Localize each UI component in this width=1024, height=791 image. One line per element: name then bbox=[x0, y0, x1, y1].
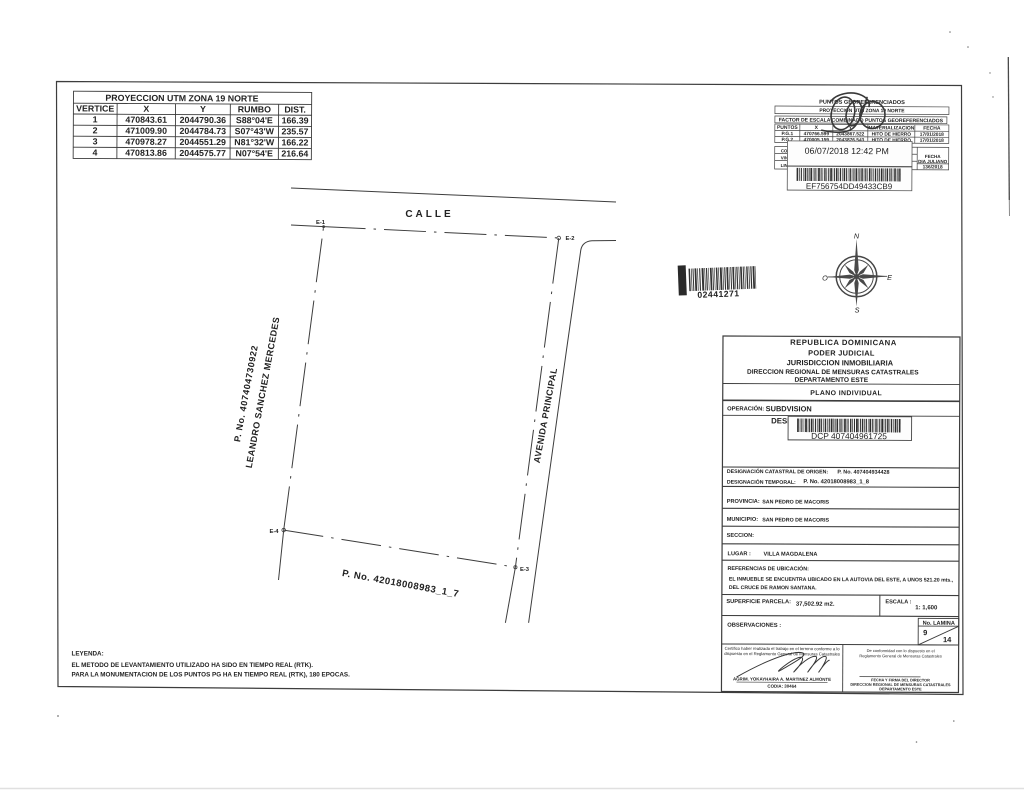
svg-text:2044575.77: 2044575.77 bbox=[179, 148, 226, 158]
svg-text:AGRIM. YOKAYHAIRA A. MARTINEZ: AGRIM. YOKAYHAIRA A. MARTINEZ ALMONTE bbox=[733, 676, 831, 681]
svg-text:235.57: 235.57 bbox=[282, 126, 309, 136]
svg-text:DEL CRUCE DE RAMON SANTANA.: DEL CRUCE DE RAMON SANTANA. bbox=[729, 585, 817, 591]
svg-text:E-4: E-4 bbox=[269, 529, 279, 535]
svg-text:OBSERVACIONES :: OBSERVACIONES : bbox=[727, 623, 781, 629]
svg-text:N: N bbox=[854, 232, 860, 241]
svg-text:N81°32'W: N81°32'W bbox=[234, 137, 275, 147]
svg-text:SECCION:: SECCION: bbox=[727, 533, 755, 539]
svg-text:2044551.29: 2044551.29 bbox=[179, 137, 226, 147]
svg-text:VERTICE: VERTICE bbox=[76, 103, 114, 113]
svg-text:PUNTOS: PUNTOS bbox=[777, 125, 798, 131]
svg-text:PROYECCION UTM ZONA 19 NORTE: PROYECCION UTM ZONA 19 NORTE bbox=[105, 93, 258, 104]
svg-text:LUGAR :: LUGAR : bbox=[728, 551, 751, 557]
svg-text:PROVINCIA:: PROVINCIA: bbox=[727, 499, 760, 505]
svg-text:PARA LA MONUMENTACION DE LOS P: PARA LA MONUMENTACION DE LOS PUNTOS PG H… bbox=[72, 672, 351, 679]
svg-text:471009.90: 471009.90 bbox=[125, 126, 167, 136]
svg-text:REFERENCIAS DE UBICACIÓN:: REFERENCIAS DE UBICACIÓN: bbox=[727, 564, 809, 572]
svg-text:N07°54'E: N07°54'E bbox=[235, 148, 273, 158]
svg-text:X: X bbox=[143, 104, 149, 114]
svg-text:1: 1 bbox=[93, 114, 98, 124]
svg-text:DIRECCION REGIONAL DE MENSURAS: DIRECCION REGIONAL DE MENSURAS CATASTRAL… bbox=[747, 369, 919, 377]
svg-text:DCP 407404961725: DCP 407404961725 bbox=[811, 431, 887, 441]
svg-text:02441271: 02441271 bbox=[697, 288, 740, 300]
svg-text:O: O bbox=[822, 273, 828, 282]
svg-text:REPUBLICA DOMINICANA: REPUBLICA DOMINICANA bbox=[790, 338, 897, 347]
svg-text:MUNICIPIO:: MUNICIPIO: bbox=[727, 517, 759, 523]
svg-text:9: 9 bbox=[923, 628, 927, 637]
svg-text:DEPARTAMENTO ESTE: DEPARTAMENTO ESTE bbox=[879, 687, 922, 691]
svg-text:2044790.36: 2044790.36 bbox=[180, 115, 227, 125]
svg-text:470766.599: 470766.599 bbox=[804, 131, 830, 137]
svg-text:E-2: E-2 bbox=[565, 236, 574, 242]
svg-text:DIA JULIANO: DIA JULIANO bbox=[918, 159, 948, 164]
svg-text:CALLE: CALLE bbox=[405, 209, 453, 220]
svg-text:2: 2 bbox=[93, 125, 98, 135]
svg-text:166.22: 166.22 bbox=[281, 137, 308, 147]
svg-text:166.39: 166.39 bbox=[282, 115, 309, 125]
svg-text:470843.61: 470843.61 bbox=[125, 115, 167, 125]
svg-text:06/07/2018 12:42 PM: 06/07/2018 12:42 PM bbox=[805, 146, 889, 156]
svg-text:E-3: E-3 bbox=[520, 567, 530, 573]
svg-text:S: S bbox=[855, 306, 860, 315]
svg-text:Reglamento General de Mensuras: Reglamento General de Mensuras Catastral… bbox=[859, 653, 942, 658]
svg-text:FECHA Y FIRMA DEL DIRECTOR: FECHA Y FIRMA DEL DIRECTOR bbox=[871, 678, 930, 682]
svg-text:37,502.92 m2.: 37,502.92 m2. bbox=[796, 602, 835, 608]
svg-text:216.64: 216.64 bbox=[281, 148, 308, 158]
svg-text:ESCALA :: ESCALA : bbox=[885, 599, 911, 605]
svg-text:3: 3 bbox=[93, 136, 98, 146]
svg-text:PODER JUDICIAL: PODER JUDICIAL bbox=[808, 348, 875, 357]
svg-text:E: E bbox=[887, 273, 892, 282]
svg-text:SAN PEDRO DE MACORIS: SAN PEDRO DE MACORIS bbox=[762, 517, 829, 523]
svg-text:2044784.73: 2044784.73 bbox=[180, 126, 227, 136]
svg-text:DEPARTAMENTO ESTE: DEPARTAMENTO ESTE bbox=[794, 377, 868, 384]
svg-text:HITO DE HIERRO: HITO DE HIERRO bbox=[872, 132, 912, 138]
svg-text:LEYENDA:: LEYENDA: bbox=[72, 651, 104, 658]
svg-text:SUBDVISION: SUBDVISION bbox=[766, 404, 812, 413]
svg-text:DIST.: DIST. bbox=[284, 105, 306, 115]
svg-text:DESIGNACIÓN TEMPORAL:: DESIGNACIÓN TEMPORAL: bbox=[727, 478, 796, 486]
svg-text:17/01/2018: 17/01/2018 bbox=[920, 138, 944, 144]
svg-text:EF756754DD49433CB9: EF756754DD49433CB9 bbox=[806, 182, 893, 191]
svg-text:4: 4 bbox=[93, 147, 98, 157]
svg-text:DESI: DESI bbox=[771, 416, 789, 425]
svg-text:1: 1,600: 1: 1,600 bbox=[915, 605, 938, 611]
svg-text:EL METODO DE LEVANTAMIENTO UTI: EL METODO DE LEVANTAMIENTO UTILIZADO HA … bbox=[72, 662, 314, 669]
svg-text:S07°43'W: S07°43'W bbox=[235, 126, 275, 136]
svg-text:JURISDICCION INMOBILIARIA: JURISDICCION INMOBILIARIA bbox=[787, 358, 894, 367]
svg-text:X: X bbox=[815, 125, 819, 131]
svg-text:PLANO INDIVIDUAL: PLANO INDIVIDUAL bbox=[810, 390, 882, 397]
svg-text:RUMBO: RUMBO bbox=[238, 104, 271, 114]
svg-text:Y: Y bbox=[200, 104, 206, 114]
svg-text:17/01/2018: 17/01/2018 bbox=[920, 132, 944, 138]
svg-text:470813.86: 470813.86 bbox=[125, 148, 167, 158]
svg-text:CODIA: 30464: CODIA: 30464 bbox=[767, 684, 797, 689]
svg-text:P. No. 42018008983_1_7: P. No. 42018008983_1_7 bbox=[341, 568, 460, 600]
svg-text:P.G.1: P.G.1 bbox=[781, 131, 793, 137]
svg-text:SAN PEDRO DE MACORIS: SAN PEDRO DE MACORIS bbox=[762, 499, 829, 505]
svg-text:P. No. 407404934428: P. No. 407404934428 bbox=[837, 470, 889, 476]
svg-text:OPERACIÓN:: OPERACIÓN: bbox=[727, 404, 764, 412]
svg-text:SUPERFICIE PARCELA:: SUPERFICIE PARCELA: bbox=[726, 599, 791, 605]
svg-text:P. No. 42018008983_1_8: P. No. 42018008983_1_8 bbox=[803, 479, 869, 485]
svg-text:E-1: E-1 bbox=[316, 220, 326, 226]
svg-text:S88°04'E: S88°04'E bbox=[236, 115, 273, 125]
svg-text:EL INMUEBLE SE ENCUENTRA UBICA: EL INMUEBLE SE ENCUENTRA UBICADO EN LA A… bbox=[729, 577, 954, 584]
svg-text:FECHA: FECHA bbox=[923, 126, 941, 132]
svg-text:14: 14 bbox=[943, 635, 952, 644]
svg-text:DESIGNACIÓN CATASTRAL DE ORIG: DESIGNACIÓN CATASTRAL DE ORIGEN: bbox=[727, 467, 828, 475]
svg-text:136/2018: 136/2018 bbox=[923, 164, 943, 170]
svg-text:VILLA MAGDALENA: VILLA MAGDALENA bbox=[764, 552, 818, 558]
svg-text:470978.27: 470978.27 bbox=[125, 137, 167, 147]
svg-text:No. LAMINA: No. LAMINA bbox=[923, 621, 955, 627]
svg-text:AVENIDA PRINCIPAL: AVENIDA PRINCIPAL bbox=[532, 367, 559, 464]
